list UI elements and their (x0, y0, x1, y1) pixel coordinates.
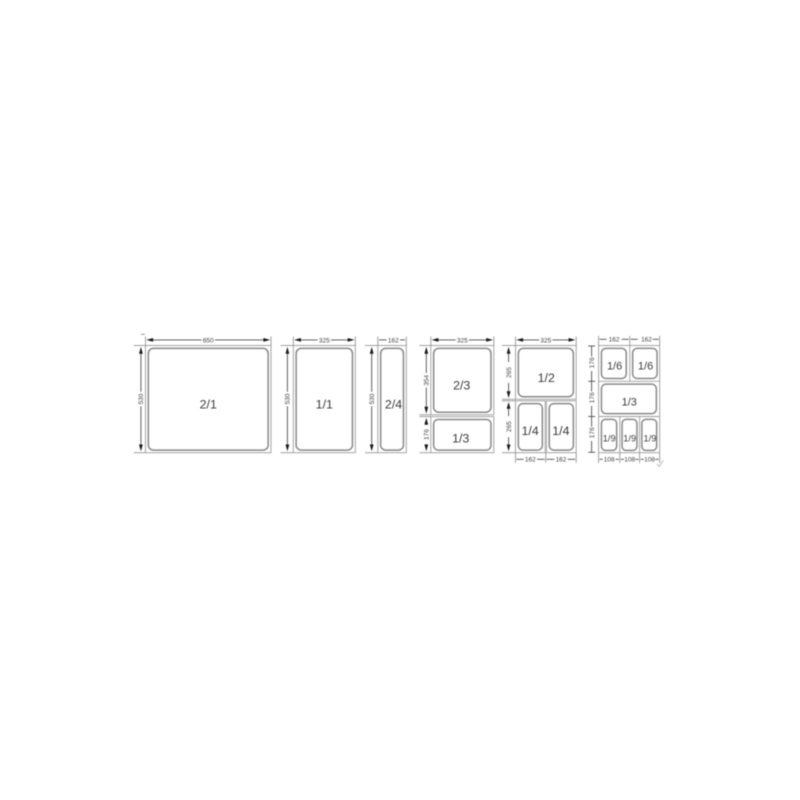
svg-text:1/2: 1/2 (538, 371, 555, 385)
svg-text:162: 162 (641, 337, 652, 344)
svg-text:162: 162 (525, 457, 536, 464)
svg-text:2/3: 2/3 (453, 378, 470, 392)
svg-text:530: 530 (138, 393, 145, 404)
svg-text:1/3: 1/3 (622, 396, 637, 408)
svg-text:265: 265 (506, 421, 513, 432)
svg-text:1/3: 1/3 (452, 432, 469, 446)
svg-text:1/6: 1/6 (607, 361, 622, 373)
svg-text:176: 176 (424, 429, 431, 440)
svg-text:108: 108 (624, 457, 635, 464)
svg-text:176: 176 (589, 392, 596, 403)
svg-text:108: 108 (644, 457, 655, 464)
svg-text:162: 162 (556, 457, 567, 464)
svg-text:162: 162 (609, 337, 620, 344)
svg-text:162: 162 (388, 338, 399, 345)
svg-text:1/1: 1/1 (316, 397, 333, 411)
svg-text:1/9: 1/9 (623, 433, 636, 443)
svg-text:1/9: 1/9 (603, 433, 616, 443)
svg-text:176: 176 (589, 357, 596, 368)
svg-text:1/4: 1/4 (522, 424, 539, 438)
svg-text:325: 325 (457, 338, 468, 345)
svg-text:1/4: 1/4 (552, 424, 569, 438)
svg-text:176: 176 (589, 427, 596, 438)
svg-text:1/9: 1/9 (644, 433, 657, 443)
svg-text:2/4: 2/4 (385, 397, 402, 411)
svg-text:1/6: 1/6 (638, 361, 653, 373)
svg-text:354: 354 (424, 374, 431, 385)
svg-text:650: 650 (203, 338, 214, 345)
svg-text:2/1: 2/1 (200, 397, 217, 411)
svg-text:530: 530 (285, 393, 292, 404)
svg-text:530: 530 (369, 393, 376, 404)
svg-text:108: 108 (604, 457, 615, 464)
svg-text:325: 325 (319, 338, 330, 345)
svg-text:265: 265 (506, 367, 513, 378)
svg-text:325: 325 (540, 338, 551, 345)
